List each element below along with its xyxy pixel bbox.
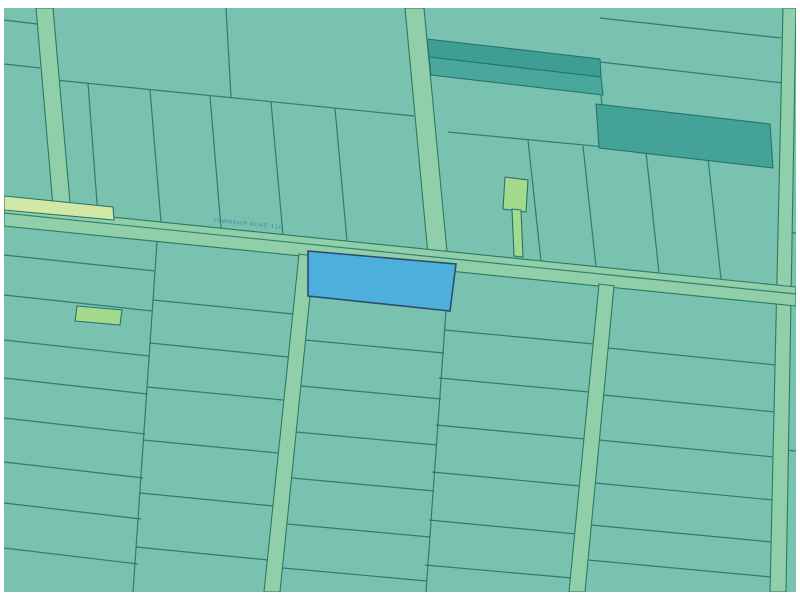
parcel-flag-body[interactable] [503, 177, 528, 212]
map-features-layer [4, 8, 796, 592]
parcel-flag-stem[interactable] [512, 209, 523, 257]
map-viewport[interactable]: TOWNSHIP ROAD 110 [0, 0, 800, 600]
parcel-light-green-small[interactable] [75, 306, 122, 325]
parcel-map-svg[interactable]: TOWNSHIP ROAD 110 [0, 0, 800, 600]
